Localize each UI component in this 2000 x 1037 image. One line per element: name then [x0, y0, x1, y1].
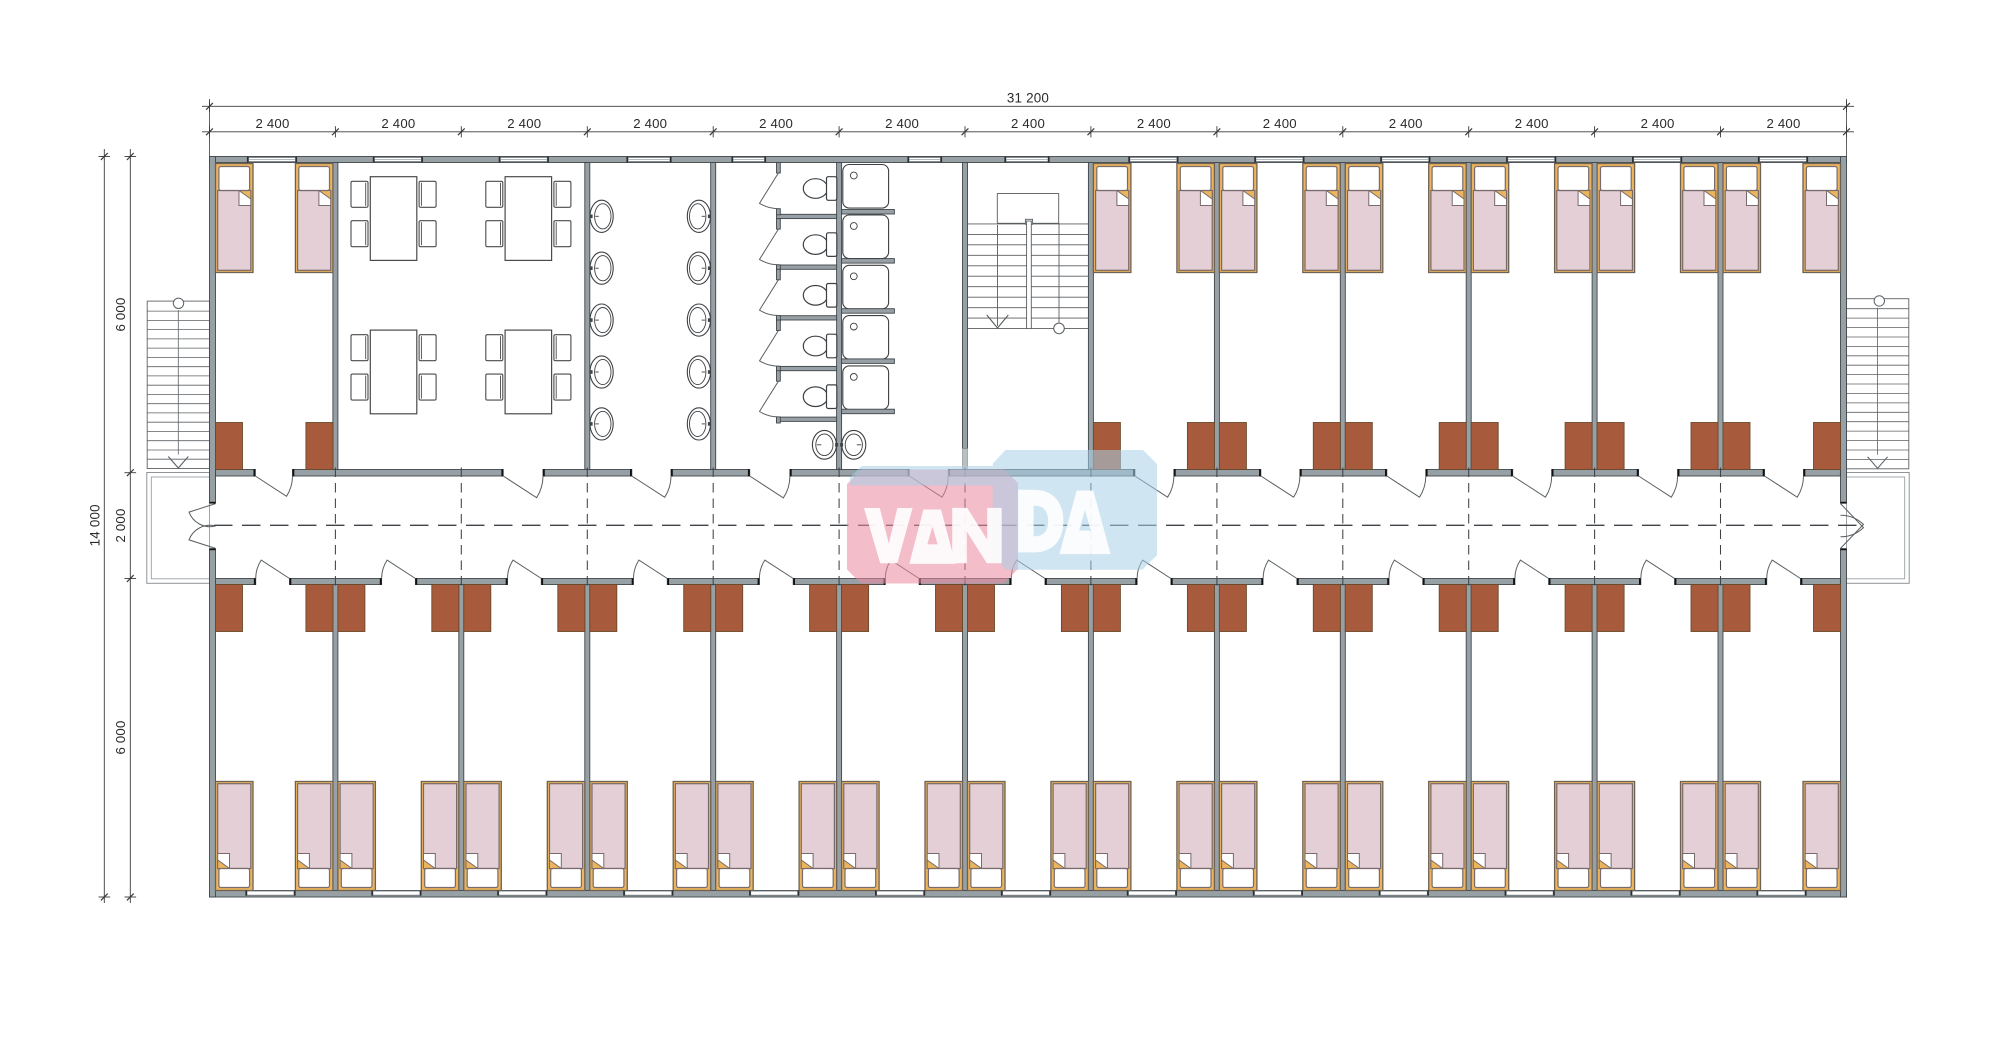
svg-text:2 400: 2 400 [1263, 116, 1297, 131]
svg-text:2 400: 2 400 [1011, 116, 1045, 131]
svg-text:14 000: 14 000 [88, 504, 103, 546]
svg-text:6 000: 6 000 [113, 720, 128, 754]
svg-text:2 400: 2 400 [381, 116, 415, 131]
svg-text:2 400: 2 400 [885, 116, 919, 131]
svg-text:31 200: 31 200 [1007, 90, 1049, 105]
svg-text:2 400: 2 400 [1766, 116, 1800, 131]
svg-text:2 400: 2 400 [1137, 116, 1171, 131]
svg-text:2 400: 2 400 [507, 116, 541, 131]
svg-text:2 400: 2 400 [759, 116, 793, 131]
svg-text:2 400: 2 400 [255, 116, 289, 131]
svg-text:2 400: 2 400 [1515, 116, 1549, 131]
svg-text:6 000: 6 000 [113, 297, 128, 331]
svg-text:2 000: 2 000 [113, 508, 128, 542]
svg-text:2 400: 2 400 [1389, 116, 1423, 131]
svg-text:2 400: 2 400 [1641, 116, 1675, 131]
svg-text:2 400: 2 400 [633, 116, 667, 131]
